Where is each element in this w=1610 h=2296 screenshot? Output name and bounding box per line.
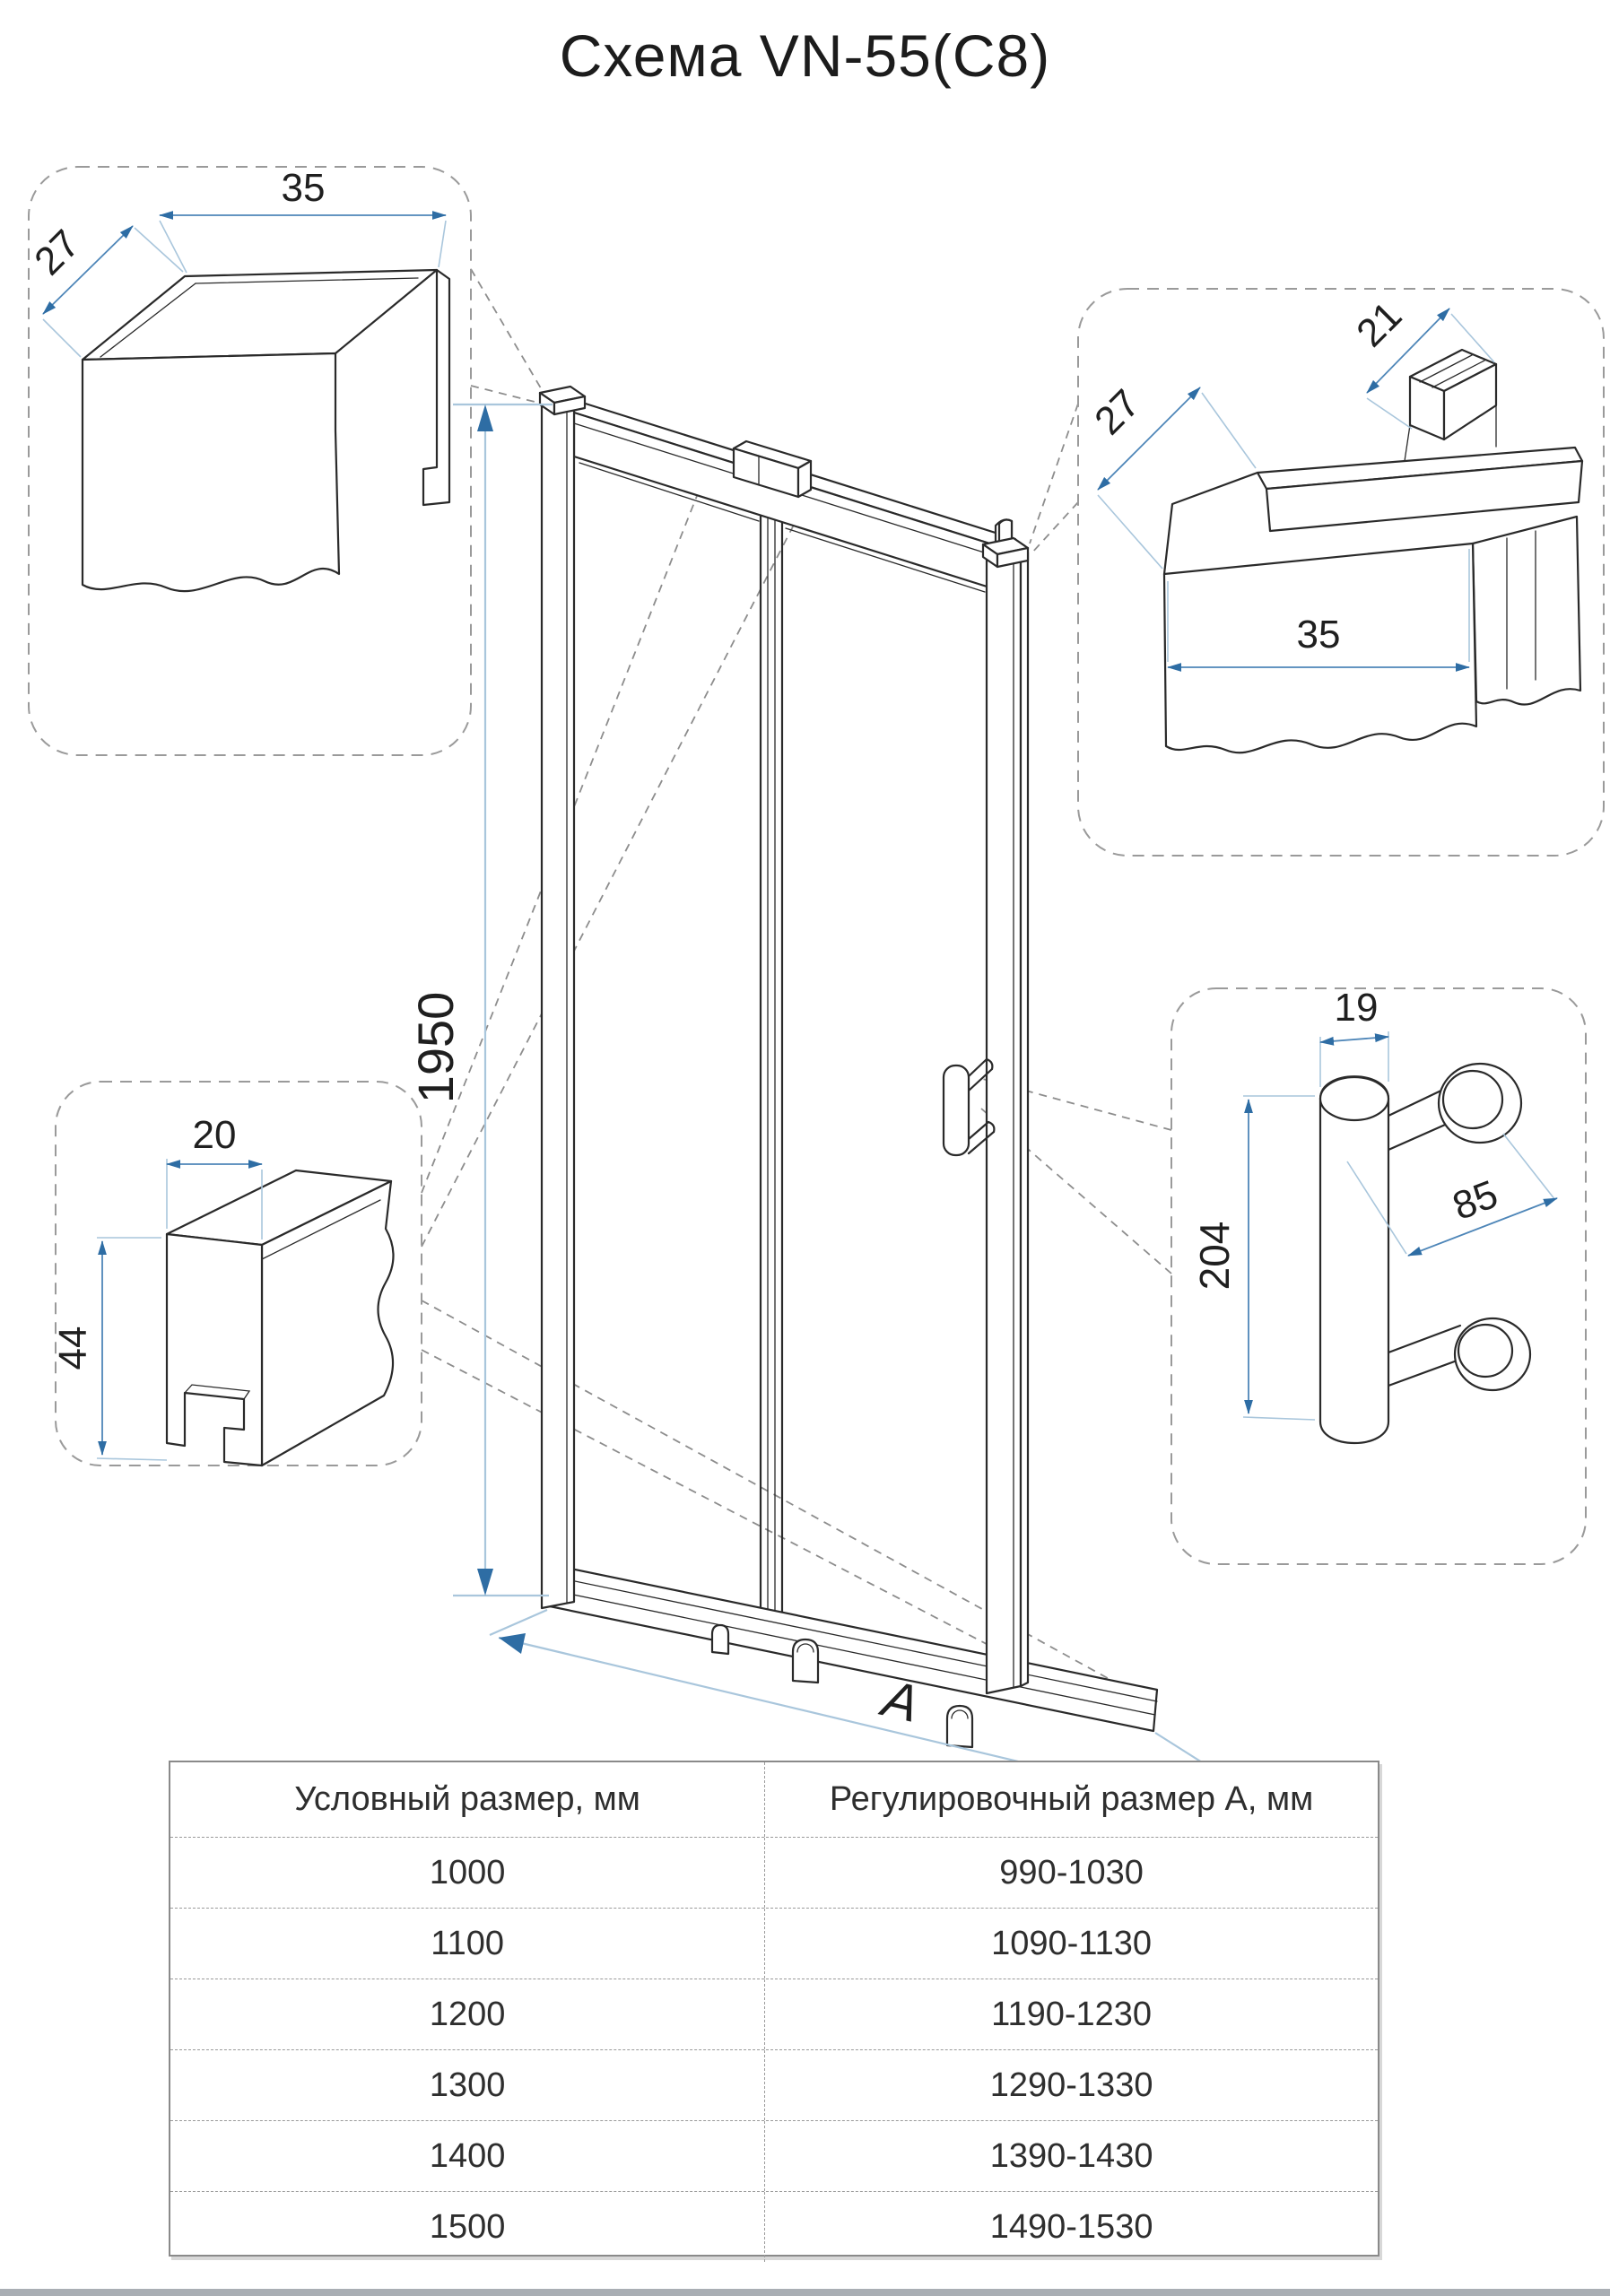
rail-profile-drawing — [167, 1170, 394, 1465]
schematic-page: { "title": "Схема VN-55(C8)", "diagram":… — [0, 0, 1610, 2296]
svg-text:35: 35 — [1297, 613, 1341, 657]
dimension-44: 44 — [51, 1238, 167, 1460]
callout-wall-profile-right: 21 27 35 — [1078, 289, 1604, 856]
svg-text:20: 20 — [193, 1113, 237, 1157]
adjustable-size: 990-1030 — [764, 1838, 1378, 1908]
size-table-header-adjustable: Регулировочный размер А, мм — [764, 1762, 1378, 1837]
nominal-size: 1300 — [170, 2050, 764, 2120]
table-row: 1200 1190-1230 — [170, 1979, 1378, 2049]
dimension-27: 27 — [1086, 381, 1256, 569]
adjustable-size: 1090-1130 — [764, 1909, 1378, 1979]
roller — [793, 1639, 818, 1683]
callout-rail-profile: 20 44 — [51, 1082, 422, 1465]
size-table-header-nominal: Условный размер, мм — [170, 1762, 764, 1837]
door-right-profile — [983, 520, 1028, 1693]
svg-text:44: 44 — [51, 1326, 95, 1370]
table-row: 1100 1090-1130 — [170, 1908, 1378, 1979]
height-dimension-label: 1950 — [407, 992, 464, 1104]
adjustable-size: 1490-1530 — [764, 2192, 1378, 2262]
table-row: 1000 990-1030 — [170, 1837, 1378, 1908]
wall-profile-drawing — [83, 270, 449, 591]
nominal-size: 1500 — [170, 2192, 764, 2262]
nominal-size: 1400 — [170, 2121, 764, 2191]
size-table: Условный размер, мм Регулировочный разме… — [169, 1761, 1379, 2257]
door-bottom-rail — [545, 1564, 1157, 1731]
nominal-size: 1100 — [170, 1909, 764, 1979]
door-top-rail — [574, 400, 1015, 596]
table-row: 1500 1490-1530 — [170, 2191, 1378, 2262]
dimension-19: 19 — [1320, 986, 1388, 1087]
svg-text:27: 27 — [26, 222, 88, 283]
dimension-204: 204 — [1191, 1096, 1315, 1420]
wall-profile-drawing — [1164, 350, 1582, 752]
roller — [947, 1706, 972, 1747]
nominal-size: 1000 — [170, 1838, 764, 1908]
width-dimension-label: A — [875, 1668, 924, 1734]
adjustable-size: 1290-1330 — [764, 2050, 1378, 2120]
callout-wall-profile-left: 35 27 — [26, 166, 471, 755]
svg-text:85: 85 — [1447, 1172, 1503, 1229]
size-table-header-row: Условный размер, мм Регулировочный разме… — [170, 1762, 1378, 1837]
height-dimension-1950: 1950 — [407, 404, 553, 1596]
adjustable-size: 1390-1430 — [764, 2121, 1378, 2191]
adjustable-size: 1190-1230 — [764, 1979, 1378, 2049]
table-row: 1300 1290-1330 — [170, 2049, 1378, 2120]
nominal-size: 1200 — [170, 1979, 764, 2049]
svg-text:21: 21 — [1348, 293, 1410, 355]
page-bottom-strip — [0, 2289, 1610, 2296]
roller-small — [712, 1625, 728, 1654]
table-row: 1400 1390-1430 — [170, 2120, 1378, 2191]
handle-drawing — [1320, 1064, 1530, 1443]
svg-text:35: 35 — [282, 166, 326, 210]
door-centre-stile — [761, 516, 782, 1613]
callout-handle-detail: 19 204 85 — [1171, 986, 1586, 1564]
dimension-35: 35 — [160, 166, 446, 273]
door-left-profile — [540, 387, 585, 1608]
svg-text:19: 19 — [1335, 986, 1379, 1030]
svg-text:204: 204 — [1191, 1222, 1238, 1291]
svg-text:27: 27 — [1086, 381, 1148, 443]
